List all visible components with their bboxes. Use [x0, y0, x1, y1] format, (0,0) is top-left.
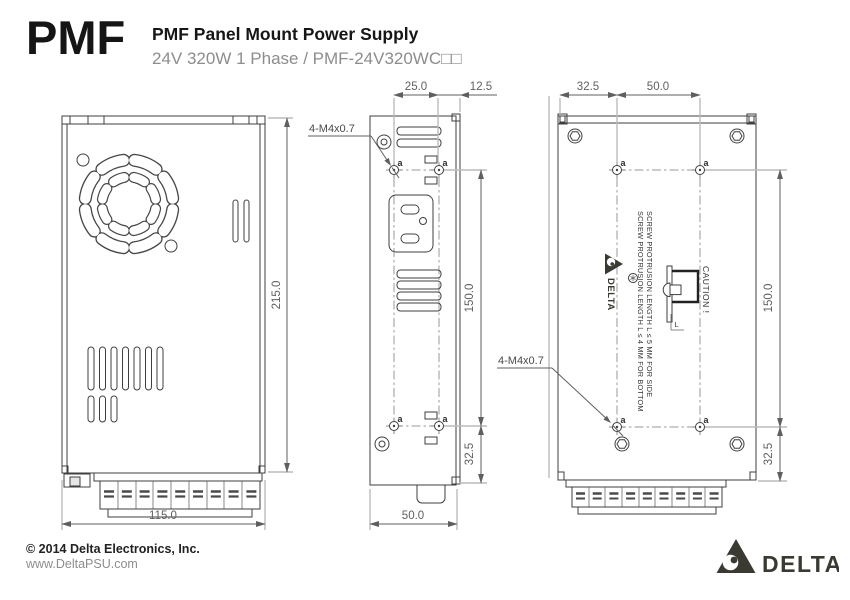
hole-label: a: [704, 415, 710, 425]
dim-bottom-top: 32.5 50.0: [560, 81, 700, 162]
delta-wordmark: DELTA: [762, 551, 839, 577]
bottom-mounting-hole: a: [692, 415, 710, 435]
hex-screw: [568, 129, 582, 143]
dim-bottom-right: 150.0 32.5: [706, 170, 787, 481]
dim-text-25: 25.0: [405, 81, 427, 93]
screw-spec-label: 4-M4x0.7: [498, 355, 544, 367]
dim-side-right: 150.0 32.5: [445, 170, 487, 483]
bottom-view: a a a a DELTA: [497, 81, 787, 514]
dim-front-width: 115.0: [62, 480, 265, 530]
side-mounting-hole: a: [431, 414, 449, 434]
side-top-vent-slots: [397, 127, 441, 147]
fan-grille: [85, 160, 172, 247]
screw-protrusion-note-2: SCREW PROTRUSION LENGTH L ≤ 5 MM FOR SID…: [645, 211, 654, 397]
hole-label: a: [443, 414, 449, 424]
side-view: a a a a: [308, 81, 497, 530]
bottom-mounting-hole: a: [609, 415, 627, 435]
copyright-text: © 2014 Delta Electronics, Inc.: [26, 542, 200, 556]
side-cutout: [425, 156, 437, 163]
dim-text-50: 50.0: [402, 510, 424, 522]
caution-screw-diagram: L: [663, 266, 698, 330]
dim-text-12-5: 12.5: [470, 81, 492, 93]
dim-text-215: 215.0: [271, 281, 283, 310]
bottom-corner-brackets: [558, 114, 756, 480]
hex-screw: [730, 437, 744, 451]
length-label: L: [675, 320, 679, 329]
delta-logo: DELTA: [713, 536, 839, 584]
delta-wordmark-print: DELTA: [605, 278, 616, 311]
bottom-mounting-hole: a: [692, 158, 710, 178]
front-switch: [64, 474, 90, 487]
website-text: www.DeltaPSU.com: [26, 557, 200, 571]
bottom-screw-callout: 4-M4x0.7: [497, 355, 623, 436]
side-screw-callout: 4-M4x0.7: [308, 123, 399, 178]
hex-screw: [615, 437, 629, 451]
bottom-mounting-hole: a: [609, 158, 627, 178]
front-screw-hole-top: [77, 154, 89, 166]
dim-text-115: 115.0: [149, 510, 177, 522]
front-screw-hole-bottom: [165, 240, 177, 252]
screw-protrusion-note-1: SCREW PROTRUSION LENGTH L ≤ 4 MM FOR BOT…: [636, 211, 645, 412]
mechanical-drawing: 215.0 115.0 a: [0, 0, 850, 600]
dim-side-top: 25.0 12.5: [394, 81, 497, 162]
side-lower-vent-slots: [397, 270, 441, 311]
footer: © 2014 Delta Electronics, Inc. www.Delta…: [26, 542, 200, 571]
dim-text-150: 150.0: [464, 284, 476, 313]
front-vent-slots-row2: [88, 396, 117, 422]
caution-label: CAUTION !: [701, 266, 711, 313]
front-top-tabs: [62, 116, 265, 124]
hex-screw: [730, 129, 744, 143]
side-cutout: [425, 177, 437, 184]
hole-label: a: [621, 415, 627, 425]
side-grommet-top: [377, 135, 391, 149]
front-view: 215.0 115.0: [62, 116, 293, 530]
dim-text-50: 50.0: [647, 81, 669, 93]
dim-text-32-5: 32.5: [464, 443, 476, 465]
dim-text-32-5: 32.5: [577, 81, 599, 93]
side-grommet-bottom: [375, 437, 389, 451]
bottom-terminal-block: [566, 480, 726, 514]
iec-inlet: [389, 195, 433, 252]
dim-text-32-5-b: 32.5: [763, 443, 775, 465]
dim-side-depth: 50.0: [370, 489, 457, 530]
front-body-outline: [62, 116, 265, 473]
front-terminal-block: [94, 473, 262, 517]
hole-label: a: [704, 158, 710, 168]
side-mounting-hole: a: [386, 414, 404, 434]
side-bottom-tab: [417, 485, 445, 503]
side-cutout: [425, 437, 437, 444]
hole-label: a: [398, 158, 404, 168]
screw-spec-label: 4-M4x0.7: [309, 123, 355, 135]
hole-label: a: [443, 158, 449, 168]
dim-front-height: 215.0: [268, 118, 293, 472]
delta-logo-print: DELTA: [605, 254, 623, 311]
front-side-vent-slots: [233, 200, 249, 242]
side-cutout: [425, 412, 437, 419]
dim-text-150: 150.0: [763, 284, 775, 313]
side-mounting-hole: a: [431, 158, 449, 178]
front-vent-slots-row1: [88, 347, 163, 390]
hole-label: a: [398, 414, 404, 424]
hole-label: a: [621, 158, 627, 168]
